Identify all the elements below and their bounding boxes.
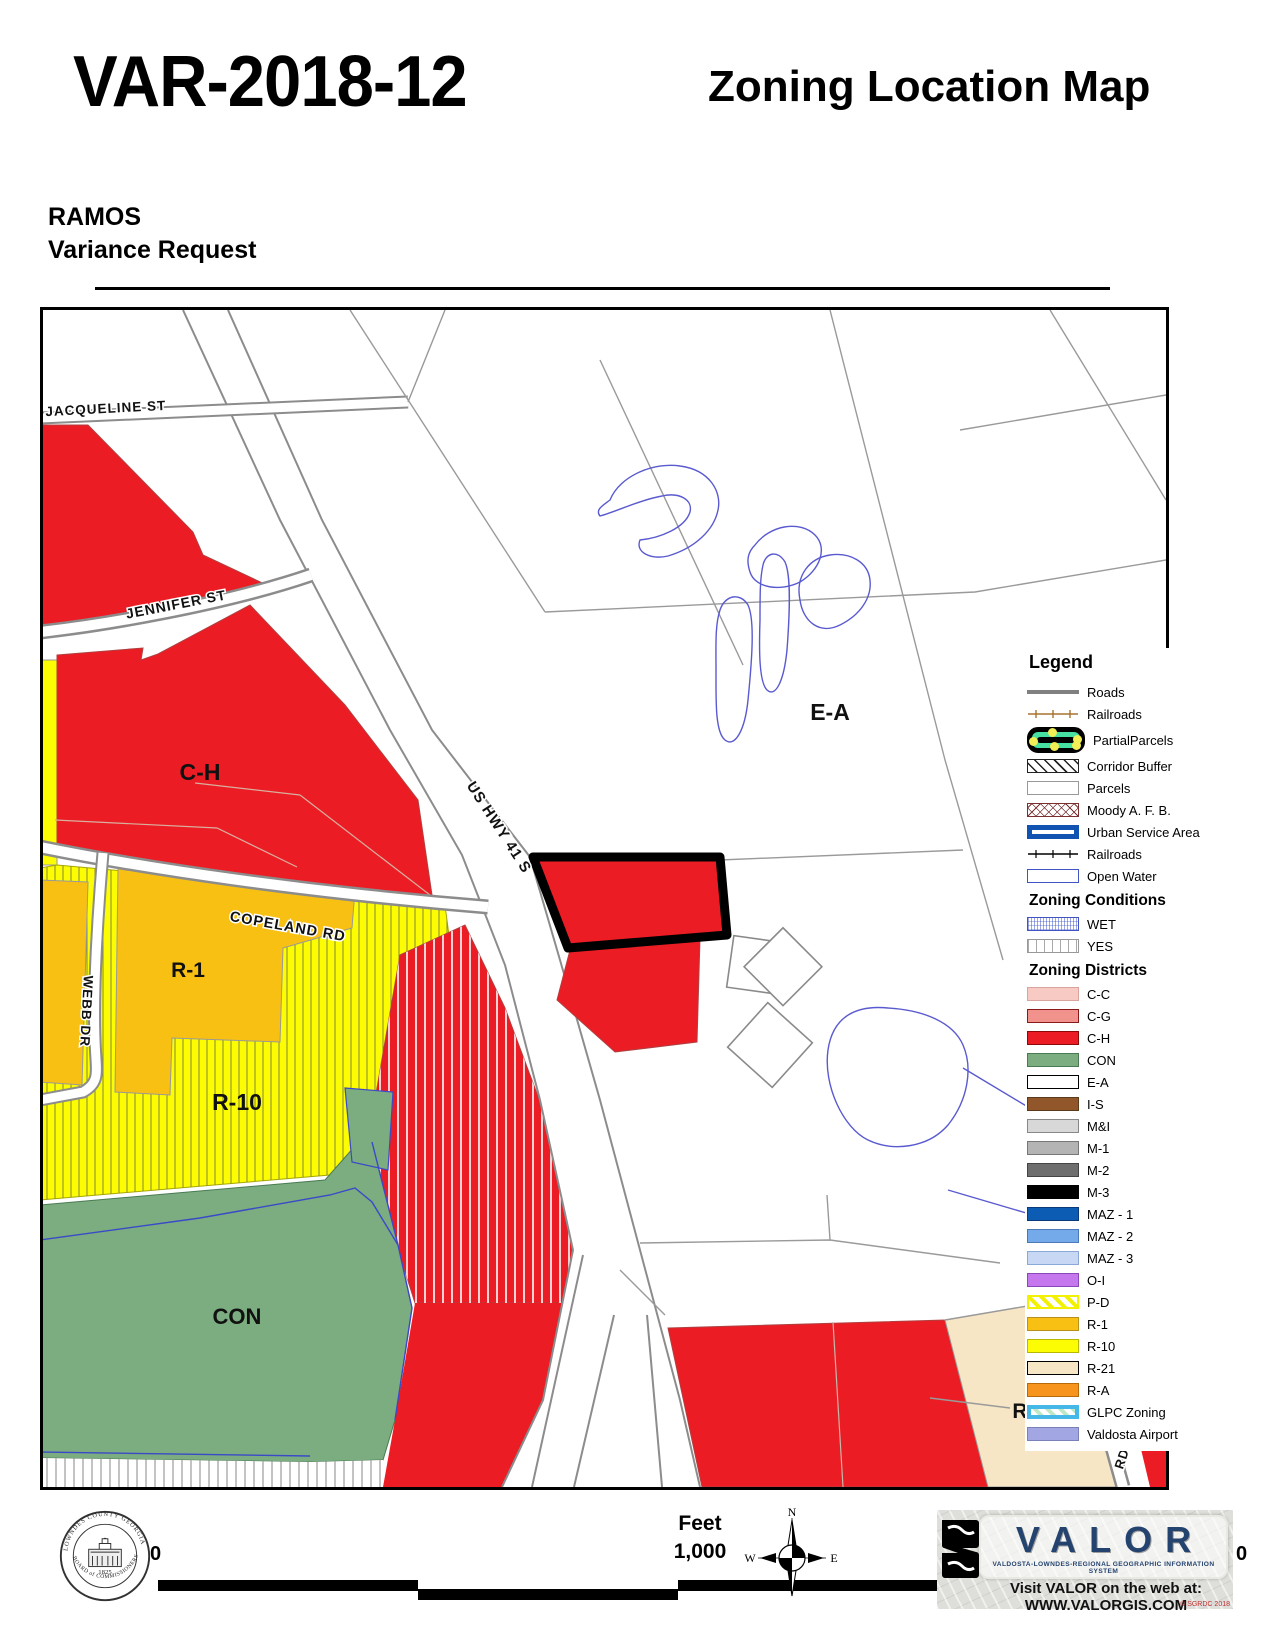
maz2-swatch xyxy=(1027,1229,1079,1243)
legend-item-roads: Roads xyxy=(1027,681,1170,703)
legend-item-maz2: MAZ - 2 xyxy=(1027,1225,1170,1247)
zone-con-label: CON xyxy=(213,1304,262,1329)
map-type-title: Zoning Location Map xyxy=(708,62,1150,112)
legend-item-ra: R-A xyxy=(1027,1379,1170,1401)
wet-symbol xyxy=(1027,917,1079,931)
scale-bar-segment-2 xyxy=(418,1589,678,1600)
legend-item-ch: C-H xyxy=(1027,1027,1170,1049)
legend-item-m2: M-2 xyxy=(1027,1159,1170,1181)
legend-item-mi: M&I xyxy=(1027,1115,1170,1137)
sgrdc-logo-glyph xyxy=(940,1518,980,1580)
legend-item-corridor-buffer: Corridor Buffer xyxy=(1027,755,1170,777)
zoning-districts-header: Zoning Districts xyxy=(1029,962,1170,980)
zoning-conditions-header: Zoning Conditions xyxy=(1029,892,1170,910)
r1-swatch xyxy=(1027,1317,1079,1331)
roads-line-symbol xyxy=(1027,690,1079,694)
open-water-symbol xyxy=(1027,869,1079,883)
railroad-black-symbol xyxy=(1027,847,1079,861)
legend-item-m1: M-1 xyxy=(1027,1137,1170,1159)
r21-swatch xyxy=(1027,1361,1079,1375)
legend-item-railroads-black: Railroads xyxy=(1027,843,1170,865)
scale-mid-value: 1,000 xyxy=(650,1540,750,1564)
maz3-swatch xyxy=(1027,1251,1079,1265)
legend-item-oi: O-I xyxy=(1027,1269,1170,1291)
legend-item-con: CON xyxy=(1027,1049,1170,1071)
valor-web-address: Visit VALOR on the web at: WWW.VALORGIS.… xyxy=(979,1580,1233,1614)
is-swatch xyxy=(1027,1097,1079,1111)
legend-item-is: I-S xyxy=(1027,1093,1170,1115)
scale-unit-label: Feet xyxy=(650,1512,750,1536)
ea-swatch xyxy=(1027,1075,1079,1089)
moody-afb-symbol xyxy=(1027,803,1079,817)
compass-rose: N W E xyxy=(742,1506,842,1598)
legend-item-cg: C-G xyxy=(1027,1005,1170,1027)
glpc-swatch xyxy=(1027,1405,1079,1419)
seal-year: 1825 xyxy=(98,1569,112,1576)
compass-west-label: W xyxy=(744,1551,756,1565)
cg-swatch xyxy=(1027,1009,1079,1023)
ra-swatch xyxy=(1027,1383,1079,1397)
legend-item-partialparcels: PartialParcels xyxy=(1027,725,1170,755)
m2-swatch xyxy=(1027,1163,1079,1177)
legend-item-glpc: GLPC Zoning xyxy=(1027,1401,1170,1423)
legend-item-ea: E-A xyxy=(1027,1071,1170,1093)
legend-panel: Legend Roads Railroads PartialParcels Co… xyxy=(1025,648,1170,1451)
legend-item-wet: WET xyxy=(1027,913,1170,935)
legend-item-moody: Moody A. F. B. xyxy=(1027,799,1170,821)
valor-tagline: VALDOSTA-LOWNDES-REGIONAL GEOGRAPHIC INF… xyxy=(981,1561,1226,1575)
maz1-swatch xyxy=(1027,1207,1079,1221)
zone-ch-southeast xyxy=(668,1320,990,1487)
zoning-map: JACQUELINE ST JENNIFER ST US HWY 41 S CO… xyxy=(43,310,1166,1487)
valor-copyright: © SGRDC 2018 xyxy=(1180,1601,1230,1608)
partial-parcels-symbol xyxy=(1027,727,1085,753)
oi-swatch xyxy=(1027,1273,1079,1287)
m1-swatch xyxy=(1027,1141,1079,1155)
m3-swatch xyxy=(1027,1185,1079,1199)
airport-swatch xyxy=(1027,1427,1079,1441)
con-swatch xyxy=(1027,1053,1079,1067)
building-outlines xyxy=(727,928,822,1088)
map-frame: JACQUELINE ST JENNIFER ST US HWY 41 S CO… xyxy=(40,307,1169,1490)
legend-item-maz1: MAZ - 1 xyxy=(1027,1203,1170,1225)
subject-parcel xyxy=(533,857,727,948)
legend-item-r21: R-21 xyxy=(1027,1357,1170,1379)
legend-item-open-water: Open Water xyxy=(1027,865,1170,887)
request-type: Variance Request xyxy=(48,236,256,265)
parcel-r10-west-strip xyxy=(43,660,57,865)
zone-ch-label: C-H xyxy=(180,759,221,785)
valor-frame: VALOR VALDOSTA-LOWNDES-REGIONAL GEOGRAPH… xyxy=(979,1515,1228,1579)
scale-bar-segment-1 xyxy=(158,1580,418,1591)
legend-title: Legend xyxy=(1029,652,1170,673)
legend-item-cc: C-C xyxy=(1027,983,1170,1005)
zone-ea-label: E-A xyxy=(810,699,850,725)
urban-service-area-symbol xyxy=(1027,825,1079,839)
railroad-brown-symbol xyxy=(1027,707,1079,721)
legend-item-urban-service-area: Urban Service Area xyxy=(1027,821,1170,843)
compass-north-label: N xyxy=(788,1506,797,1519)
con-north-patch xyxy=(345,1088,393,1170)
zone-r1-label: R-1 xyxy=(171,959,205,982)
case-number-title: VAR-2018-12 xyxy=(73,40,467,123)
legend-item-yes: YES xyxy=(1027,935,1170,957)
legend-item-railroads-brown: Railroads xyxy=(1027,703,1170,725)
scale-left-value: 0 xyxy=(150,1543,161,1566)
legend-item-r1: R-1 xyxy=(1027,1313,1170,1335)
cc-swatch xyxy=(1027,987,1079,1001)
legend-item-airport: Valdosta Airport xyxy=(1027,1423,1170,1445)
ch-swatch xyxy=(1027,1031,1079,1045)
legend-item-parcels: Parcels xyxy=(1027,777,1170,799)
title-divider xyxy=(95,287,1110,290)
legend-item-pd: P-D xyxy=(1027,1291,1170,1313)
scale-unit-block: Feet 1,000 xyxy=(650,1512,750,1564)
legend-item-maz3: MAZ - 3 xyxy=(1027,1247,1170,1269)
applicant-name: RAMOS xyxy=(48,203,141,232)
branch-line xyxy=(408,310,445,402)
legend-item-m3: M-3 xyxy=(1027,1181,1170,1203)
page: { "header": { "case_number": "VAR-2018-1… xyxy=(0,0,1275,1651)
compass-east-label: E xyxy=(830,1551,837,1565)
parcels-symbol xyxy=(1027,781,1079,795)
county-seal: LOWNDES COUNTY GEORGIA BOARD of COMMISSI… xyxy=(57,1508,153,1604)
bottom-strip-hatch xyxy=(43,1458,383,1487)
pd-swatch xyxy=(1027,1295,1079,1309)
zone-r10-label: R-10 xyxy=(212,1089,262,1115)
valor-name: VALOR xyxy=(981,1519,1226,1561)
legend-item-r10: R-10 xyxy=(1027,1335,1170,1357)
valor-logo: VALOR VALDOSTA-LOWNDES-REGIONAL GEOGRAPH… xyxy=(937,1510,1233,1609)
r10-swatch xyxy=(1027,1339,1079,1353)
corridor-buffer-symbol xyxy=(1027,759,1079,773)
scale-right-value: 0 xyxy=(1236,1543,1247,1566)
yes-symbol xyxy=(1027,939,1079,953)
mi-swatch xyxy=(1027,1119,1079,1133)
